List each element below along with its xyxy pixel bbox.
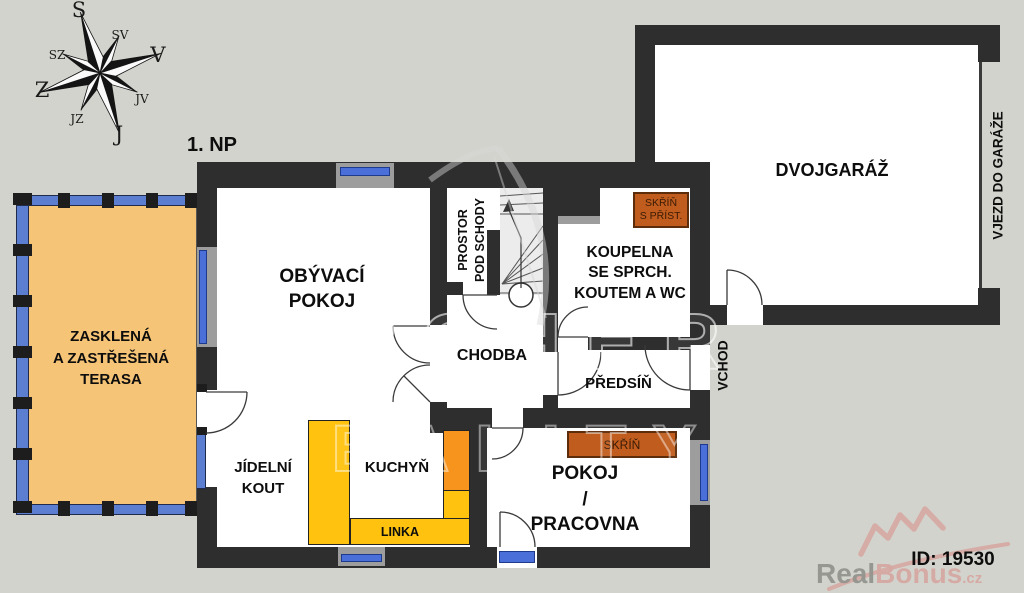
label-terrace: ZASKLENÁ A ZASTŘEŠENÁ TERASA xyxy=(30,326,192,391)
glazing-post xyxy=(146,193,158,208)
label-line: PROSTOR xyxy=(456,209,470,271)
window-left xyxy=(199,250,207,344)
label-garage: DVOJGARÁŽ xyxy=(732,160,932,181)
glazing-post xyxy=(185,501,197,516)
label-line: POKOJ xyxy=(552,463,619,484)
listing-id: ID: 19530 xyxy=(898,549,1008,571)
label-line: POKOJ xyxy=(289,291,356,312)
label-line: POD SCHODY xyxy=(473,198,487,282)
label-line: TERASA xyxy=(80,371,142,388)
label-entry-hall: PŘEDSÍŇ xyxy=(556,375,681,392)
compass-label-nw: SZ xyxy=(44,48,70,62)
compass-label-n: S xyxy=(66,0,92,22)
label-under-stairs: PROSTOR POD SCHODY xyxy=(455,184,491,296)
label-study: POKOJ / PRACOVNA xyxy=(485,461,685,538)
glazing-post xyxy=(58,193,70,208)
realbonus-logo-cz: .cz xyxy=(962,570,982,587)
label-kitchen: KUCHYŇ xyxy=(347,459,447,476)
compass-label-sw: JZ xyxy=(64,112,90,126)
compass-label-ne: SV xyxy=(107,28,133,42)
garage-wall-top xyxy=(635,25,1000,45)
label-line: JÍDELNÍ xyxy=(234,459,292,476)
glazing-post xyxy=(13,193,32,205)
window-top xyxy=(340,167,390,176)
closet-with-access-box: SKŘÍŇ S PŘÍST. xyxy=(633,192,689,228)
closet-with-access-label: S PŘÍST. xyxy=(640,210,683,224)
label-line: KOUT xyxy=(242,480,285,497)
garage-wall-stub-topright xyxy=(978,45,1000,62)
glazing-post xyxy=(13,295,32,307)
window-bottom xyxy=(341,554,382,562)
glazing-post xyxy=(185,193,197,208)
label-line: OBÝVACÍ xyxy=(279,266,364,287)
glazing-post xyxy=(146,501,158,516)
compass-rose-icon xyxy=(19,0,180,154)
label-line: PRACOVNA xyxy=(531,514,640,535)
label-line: ZASKLENÁ xyxy=(70,328,152,345)
label-line: SE SPRCH. xyxy=(588,264,672,281)
bathroom-niche xyxy=(558,216,600,224)
floor-title: 1. NP xyxy=(187,134,237,157)
closet-with-access-label: SKŘÍŇ xyxy=(645,197,677,211)
study-french-door xyxy=(499,551,535,563)
stair-floor-ext xyxy=(500,188,543,295)
kitchen-counter-right xyxy=(443,490,470,519)
garage-door-line xyxy=(979,62,982,288)
floor-plan-canvas: SKŘÍŇ S PŘÍST. SKŘÍŇ xyxy=(0,0,1024,593)
label-entrance: VCHOD xyxy=(715,330,732,402)
label-kitchen-counter: LINKA xyxy=(360,525,440,539)
label-garage-entry: VJEZD DO GARÁŽE xyxy=(991,95,1008,257)
compass-label-s: J xyxy=(106,122,132,146)
glazing-post xyxy=(13,244,32,256)
label-living-room: OBÝVACÍ POKOJ xyxy=(222,264,422,314)
label-bathroom: KOUPELNA SE SPRCH. KOUTEM A WC xyxy=(557,243,703,304)
label-line: KOUTEM A WC xyxy=(574,285,686,302)
label-line: A ZASTŘEŠENÁ xyxy=(53,350,169,367)
glazing-post xyxy=(102,193,114,208)
compass-label-w: Z xyxy=(29,78,55,102)
compass-label-se: JV xyxy=(129,92,155,106)
glazing-post xyxy=(13,397,32,409)
glazing-post xyxy=(102,501,114,516)
label-dining: JÍDELNÍ KOUT xyxy=(193,457,333,499)
label-line: / xyxy=(582,489,587,510)
compass-label-e: V xyxy=(145,43,171,67)
glazing-post xyxy=(13,448,32,460)
glazing-post xyxy=(58,501,70,516)
label-hallway: CHODBA xyxy=(442,347,542,365)
label-line: KOUPELNA xyxy=(587,244,674,261)
garage-wall-stub-bottomright xyxy=(978,288,1000,305)
realbonus-logo-real: Real xyxy=(816,558,875,589)
glazing-post xyxy=(13,501,32,513)
